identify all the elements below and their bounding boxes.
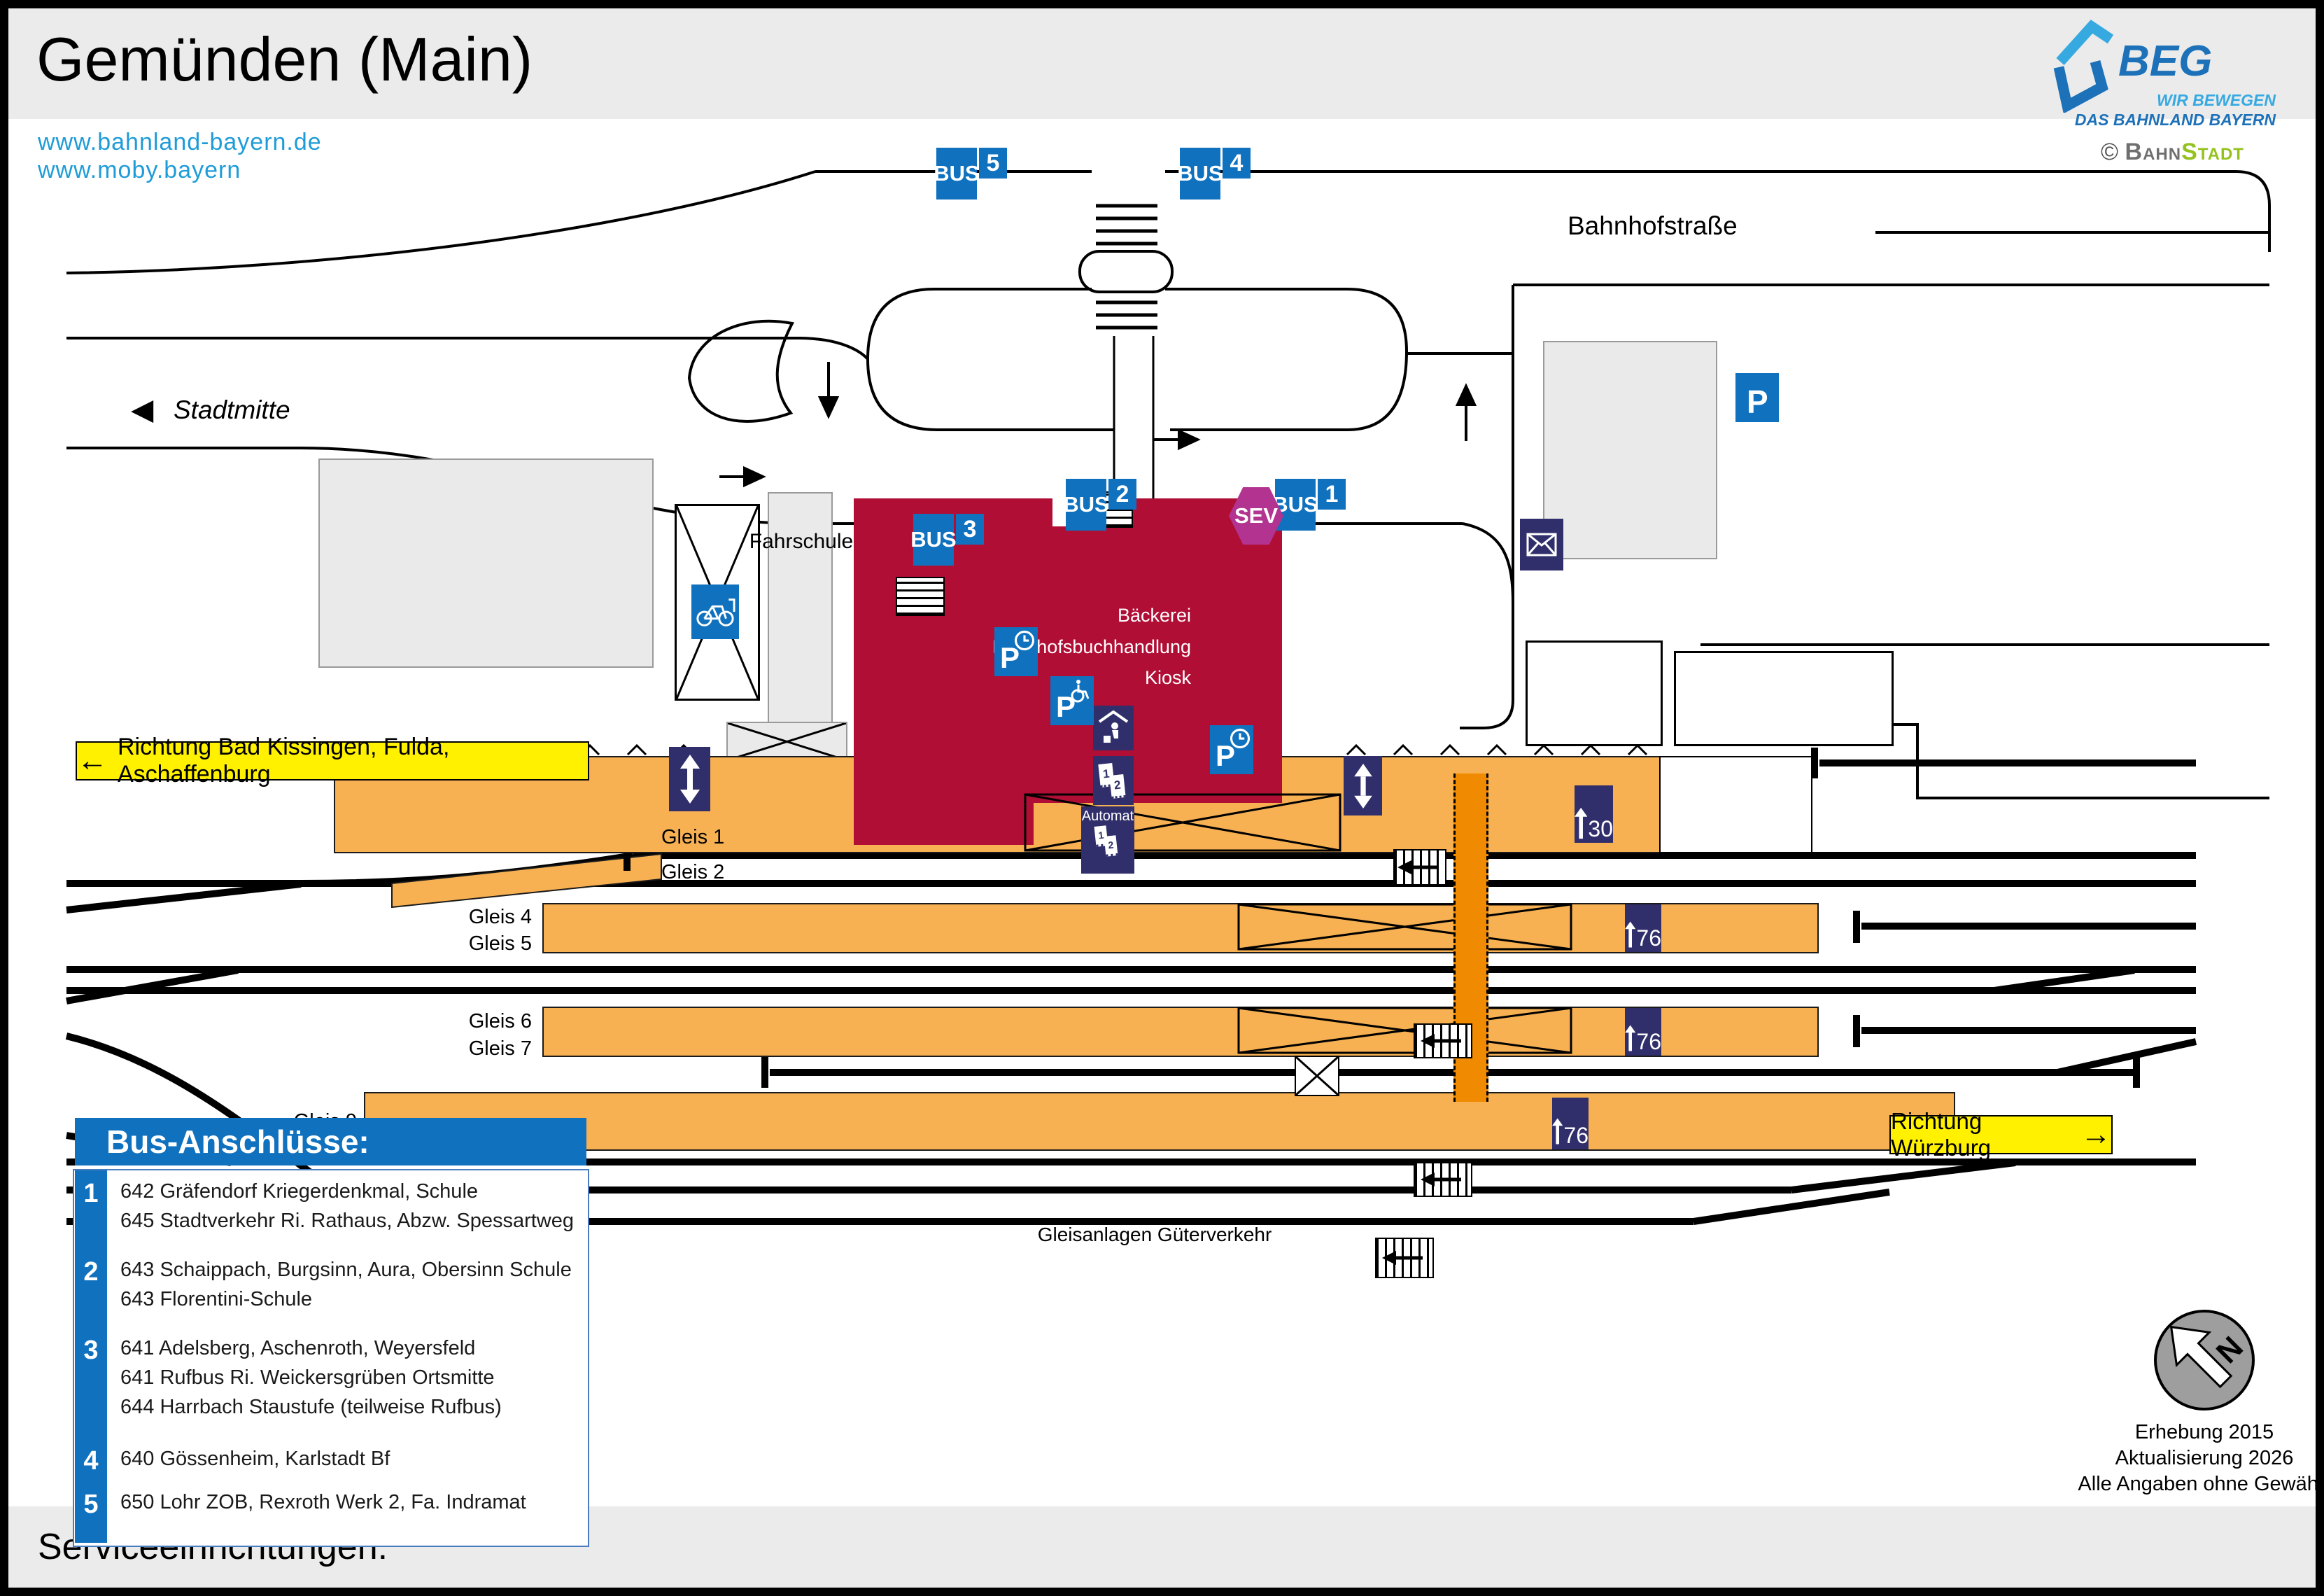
bus-badge: BUS xyxy=(1180,148,1220,199)
bus-table-row-number: 2 xyxy=(75,1257,107,1287)
bike-parking-icon xyxy=(691,584,739,639)
update-note: Aktualisierung 2026 xyxy=(2050,1447,2324,1470)
survey-note: Erhebung 2015 xyxy=(2050,1421,2324,1444)
bus-badge: BUS xyxy=(1066,479,1106,531)
beg-logo-icon xyxy=(2053,18,2116,113)
platform-9 xyxy=(364,1092,1955,1151)
bus-badge: BUS xyxy=(913,514,954,566)
platform-1-extension xyxy=(1659,756,1812,853)
track-label-gleis4: Gleis 4 xyxy=(420,906,532,929)
bus-route: 643 Florentini-Schule xyxy=(120,1288,582,1311)
direction-east-label: Richtung Würzburg → xyxy=(1889,1115,2113,1154)
bus-route: 643 Schaippach, Burgsinn, Aura, Obersinn… xyxy=(120,1259,582,1282)
up-arrow-icon xyxy=(1552,1116,1563,1147)
bus-route: 644 Harrbach Staustufe (teilweise Rufbus… xyxy=(120,1396,582,1419)
platform-height-badge: 76 xyxy=(1552,1098,1589,1149)
bus-route: 640 Gössenheim, Karlstadt Bf xyxy=(120,1448,582,1471)
bus-table-row-number: 1 xyxy=(75,1179,107,1209)
bus-route: 650 Lohr ZOB, Rexroth Werk 2, Fa. Indram… xyxy=(120,1491,582,1514)
platform-height-badge: 76 xyxy=(1625,904,1661,952)
bus-table-row-number: 3 xyxy=(75,1336,107,1366)
station-map-gemuenden: Gemünden (Main) www.bahnland-bayern.de w… xyxy=(0,0,2324,1596)
track-label-gleis5: Gleis 5 xyxy=(420,932,532,955)
bus-stop-2: BUS 2 xyxy=(1066,479,1136,531)
bus-stop-3: BUS 3 xyxy=(913,514,984,566)
bus-stop-number: 3 xyxy=(956,514,984,545)
bus-stop-4: BUS 4 xyxy=(1180,148,1251,199)
up-arrow-icon xyxy=(1625,920,1635,949)
bus-stop-number: 4 xyxy=(1223,148,1251,178)
left-arrow-icon: ← xyxy=(77,748,108,773)
stairs-icon xyxy=(1393,849,1446,885)
right-arrow-icon: → xyxy=(2080,1122,2111,1147)
bus-stop-1: BUS 1 xyxy=(1275,479,1346,531)
wheelchair-icon xyxy=(1069,679,1091,703)
building-fahrschule xyxy=(768,492,833,724)
mail-icon xyxy=(1520,519,1563,570)
building-block-east xyxy=(1543,341,1717,559)
parking-disabled-icon: P xyxy=(1050,676,1094,725)
stairs-icon xyxy=(1414,1162,1472,1197)
up-arrow-icon xyxy=(1575,806,1587,840)
track-label-gleis6: Gleis 6 xyxy=(420,1010,532,1033)
bus-stop-number: 2 xyxy=(1108,479,1136,510)
bus-table-row-number: 5 xyxy=(75,1490,107,1520)
direction-west-label: ← Richtung Bad Kissingen, Fulda, Aschaff… xyxy=(76,741,589,780)
stadtmitte-label: Stadtmitte xyxy=(174,395,290,425)
clock-icon xyxy=(1014,630,1035,651)
fahrschule-label: Fahrschule xyxy=(742,530,861,554)
street-label-bahnhofstrasse: Bahnhofstraße xyxy=(1568,211,1738,241)
elevator-icon xyxy=(669,747,710,811)
bus-badge: BUS xyxy=(1275,479,1316,531)
shelter-icon xyxy=(1295,1056,1339,1096)
track-label-gleis7: Gleis 7 xyxy=(420,1037,532,1060)
bus-stop-5: BUS 5 xyxy=(936,148,1007,199)
parking-clock-icon: P xyxy=(994,627,1038,676)
track-label-gleis1: Gleis 1 xyxy=(661,826,724,849)
north-compass-icon: N xyxy=(2152,1308,2257,1413)
bus-route: 642 Gräfendorf Kriegerdenkmal, Schule xyxy=(120,1180,582,1203)
parking-clock-icon: P xyxy=(1210,725,1253,774)
ticket-counter-icon: 1 2 xyxy=(1093,756,1134,805)
stadtmitte-arrow-icon: ◀ xyxy=(131,392,153,426)
bus-route: 645 Stadtverkehr Ri. Rathaus, Abzw. Spes… xyxy=(120,1210,582,1233)
building-block-west xyxy=(318,458,654,668)
platform-height-badge: 30 xyxy=(1575,785,1613,843)
bus-route: 641 Adelsberg, Aschenroth, Weyersfeld xyxy=(120,1337,582,1360)
freight-yard-label: Gleisanlagen Güterverkehr xyxy=(1008,1224,1302,1246)
clock-icon xyxy=(1230,728,1251,749)
disclaimer-note: Alle Angaben ohne Gewähr! xyxy=(2050,1473,2324,1496)
ticket-machine-icon: Automat 1 2 xyxy=(1081,806,1134,874)
stairs-icon xyxy=(1375,1238,1434,1278)
stairs-icon xyxy=(1414,1023,1472,1058)
outbuilding-1 xyxy=(1526,640,1663,746)
stairs-icon xyxy=(896,577,945,616)
bus-stop-number: 1 xyxy=(1318,479,1346,510)
bus-stop-number: 5 xyxy=(979,148,1007,178)
platform-height-badge: 76 xyxy=(1625,1008,1661,1056)
station-building-annex xyxy=(854,803,1034,845)
track-label-gleis2: Gleis 2 xyxy=(661,861,724,884)
bus-route: 641 Rufbus Ri. Weickersgrüben Ortsmitte xyxy=(120,1366,582,1389)
parking-icon: P xyxy=(1735,373,1779,422)
waiting-room-icon xyxy=(1093,706,1134,750)
up-arrow-icon xyxy=(1625,1023,1635,1053)
outbuilding-2 xyxy=(1674,651,1894,746)
bus-table-title: Bus-Anschlüsse: xyxy=(75,1118,586,1165)
bus-table-row-number: 4 xyxy=(75,1446,107,1476)
elevator-icon xyxy=(1344,756,1382,815)
bus-badge: BUS xyxy=(936,148,977,199)
